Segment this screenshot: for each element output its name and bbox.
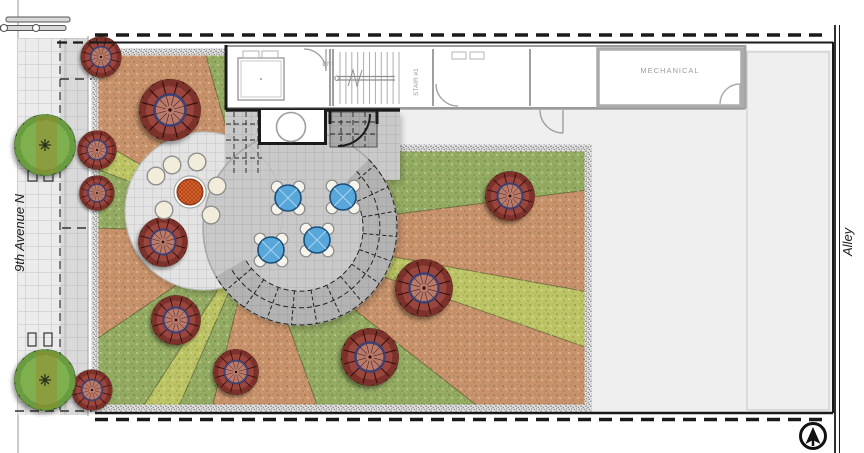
north-arrow-icon — [801, 424, 826, 449]
vestibule-annex — [258, 110, 327, 145]
table — [326, 180, 360, 214]
site-plan-drawing: DN STAIR #1 MECHANICAL — [0, 0, 864, 453]
tree — [140, 80, 200, 140]
stair-label: STAIR #1 — [413, 68, 420, 96]
table — [271, 181, 305, 215]
street-tree — [15, 115, 75, 175]
street-name-label: 9th Avenue N — [12, 193, 27, 272]
stool — [208, 177, 226, 195]
stair-dn-label: DN — [322, 61, 332, 68]
stool — [202, 206, 220, 224]
round-planter — [277, 113, 306, 142]
fire-pit — [174, 176, 206, 208]
mechanical-room: MECHANICAL — [598, 49, 742, 106]
street-tree — [15, 350, 75, 410]
site-plan: DN STAIR #1 MECHANICAL — [0, 0, 864, 453]
stool — [188, 153, 206, 171]
mechanical-label: MECHANICAL — [640, 66, 699, 75]
table — [254, 233, 288, 267]
stool — [147, 167, 165, 185]
stool — [163, 156, 181, 174]
alley-label: Alley — [840, 226, 855, 257]
stool — [155, 201, 173, 219]
table — [300, 223, 334, 257]
entry-pergola — [330, 110, 377, 147]
